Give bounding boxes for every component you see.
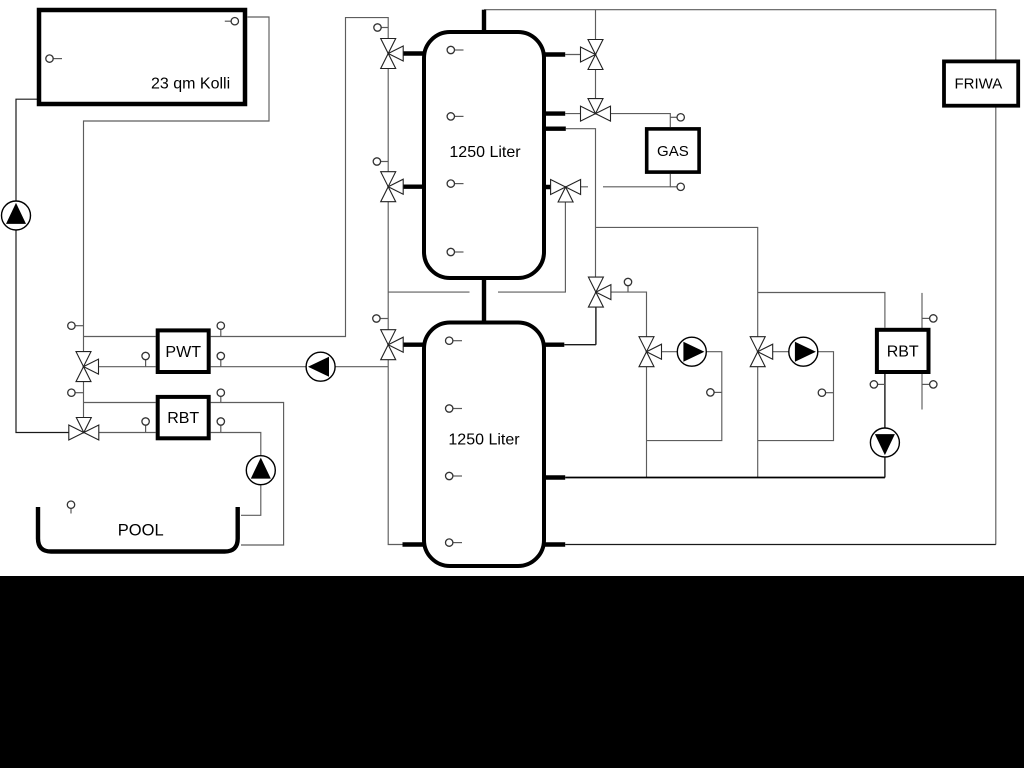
svg-text:23 qm Kolli: 23 qm Kolli xyxy=(151,76,230,93)
svg-text:POOL: POOL xyxy=(118,522,164,540)
svg-text:RBT: RBT xyxy=(167,410,199,427)
svg-text:PWT: PWT xyxy=(165,344,201,361)
svg-text:GAS: GAS xyxy=(657,143,689,160)
svg-text:RBT: RBT xyxy=(887,344,919,361)
svg-text:1250 Liter: 1250 Liter xyxy=(448,432,520,449)
svg-text:1250 Liter: 1250 Liter xyxy=(449,144,521,161)
svg-text:FRIWA: FRIWA xyxy=(955,76,1003,93)
